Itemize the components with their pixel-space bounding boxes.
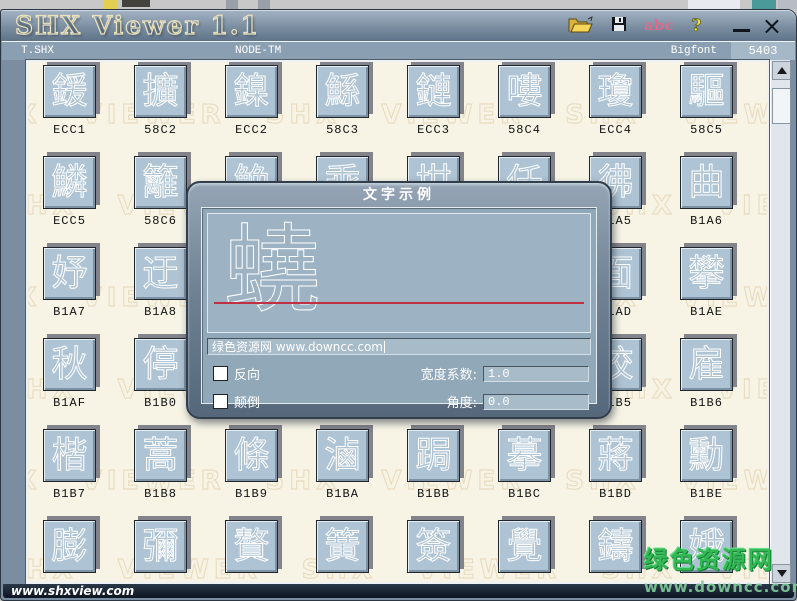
- baseline-rule: [214, 302, 584, 304]
- glyph-cell[interactable]: 鍰ECC1: [26, 64, 115, 155]
- sample-text-value: 绿色资源网 www.downcc.com: [212, 338, 383, 355]
- glyph-button[interactable]: 簧: [316, 520, 369, 573]
- glyph-char: 停: [142, 340, 178, 390]
- glyph-button[interactable]: 嘍: [498, 65, 551, 118]
- glyph-button[interactable]: 鍰: [43, 65, 96, 118]
- glyph-button[interactable]: 雇: [680, 338, 733, 391]
- glyph-button[interactable]: 鎳: [225, 65, 278, 118]
- glyph-code: 58C5: [690, 123, 723, 137]
- glyph-code: B1B8: [144, 487, 177, 501]
- glyph-cell[interactable]: 鱗ECC5: [26, 155, 115, 246]
- glyph-char: 摹: [506, 431, 542, 481]
- glyph-char: 雇: [688, 340, 724, 390]
- window-controls: ×: [733, 10, 782, 41]
- glyph-button[interactable]: 條: [225, 429, 278, 482]
- glyph-cell[interactable]: 嘍58C4: [479, 64, 570, 155]
- glyph-cell[interactable]: 妤B1A7: [26, 246, 115, 337]
- glyph-code: ECC5: [53, 214, 86, 228]
- glyph-button[interactable]: 擴: [134, 65, 187, 118]
- glyph-code: B1B6: [690, 396, 723, 410]
- glyph-cell[interactable]: 彌: [115, 519, 206, 584]
- glyph-cell[interactable]: 曲B1A6: [661, 155, 752, 246]
- glyph-char: 蔣: [597, 431, 633, 481]
- font-type-label: Bigfont: [671, 45, 717, 57]
- glyph-cell[interactable]: 蔣B1BD: [570, 428, 661, 519]
- glyph-cell[interactable]: 簧: [297, 519, 388, 584]
- desktop-fragment: [688, 0, 740, 9]
- glyph-char: 籬: [142, 158, 178, 208]
- glyph-cell[interactable]: 瓊ECC4: [570, 64, 661, 155]
- glyph-code: B1A6: [690, 214, 723, 228]
- desktop-fragment: [752, 0, 776, 9]
- loaded-file-label: T.SHX: [21, 45, 54, 57]
- help-button[interactable]: ?: [691, 16, 701, 36]
- glyph-code: B1B7: [53, 487, 86, 501]
- glyph-cell[interactable]: 鎳ECC2: [206, 64, 297, 155]
- glyph-cell[interactable]: 摹B1BC: [479, 428, 570, 519]
- close-button[interactable]: ×: [762, 12, 782, 40]
- glyph-button[interactable]: 迂: [134, 247, 187, 300]
- vertical-scrollbar[interactable]: [770, 60, 790, 584]
- glyph-button[interactable]: 妤: [43, 247, 96, 300]
- glyph-char: 贅: [233, 522, 269, 572]
- dialog-body: 蟯 绿色资源网 www.downcc.com 反向 宽度系数: 1.0 颠倒 角…: [201, 207, 597, 404]
- reverse-label: 反向: [234, 364, 260, 383]
- glyph-button[interactable]: 勳: [680, 429, 733, 482]
- preview-character: 蟯: [224, 216, 320, 324]
- angle-input[interactable]: 0.0: [483, 394, 589, 410]
- dialog-title[interactable]: 文字示例: [188, 183, 610, 205]
- glyph-button[interactable]: 贅: [225, 520, 278, 573]
- glyph-button[interactable]: 覺: [498, 520, 551, 573]
- angle-label: 角度:: [447, 392, 477, 411]
- glyph-button[interactable]: 停: [134, 338, 187, 391]
- site-watermark-url: www.downcc.com: [644, 578, 797, 596]
- glyph-char: 簧: [324, 522, 360, 572]
- screen: SHX Viewer 1.1: [0, 0, 797, 601]
- sample-text-input[interactable]: 绿色资源网 www.downcc.com: [207, 338, 591, 355]
- glyph-button[interactable]: 彌: [134, 520, 187, 573]
- font-name-label: NODE-TM: [235, 45, 281, 57]
- glyph-code: B1BA: [326, 487, 359, 501]
- glyph-code: B1B0: [144, 396, 177, 410]
- glyph-code: ECC4: [599, 123, 632, 137]
- glyph-code: B1B9: [235, 487, 268, 501]
- glyph-char: 嘍: [506, 67, 542, 117]
- glyph-cell[interactable]: 滷B1BA: [297, 428, 388, 519]
- glyph-button[interactable]: 滷: [316, 429, 369, 482]
- up-arrow-icon: [777, 67, 787, 74]
- glyph-preview-area: 蟯: [207, 213, 591, 333]
- glyph-cell[interactable]: 鯀58C3: [297, 64, 388, 155]
- glyph-char: 鎳: [233, 67, 269, 117]
- app-title: SHX Viewer 1.1: [15, 11, 260, 40]
- glyph-char: 鑄: [597, 522, 633, 572]
- open-file-icon[interactable]: [567, 15, 594, 38]
- glyph-button[interactable]: 鱗: [43, 156, 96, 209]
- glyph-cell[interactable]: 條B1B9: [206, 428, 297, 519]
- glyph-cell[interactable]: 膨: [26, 519, 115, 584]
- glyph-char: 曲: [688, 158, 724, 208]
- glyph-button[interactable]: 鯀: [316, 65, 369, 118]
- glyph-cell[interactable]: 簽: [388, 519, 479, 584]
- glyph-char: 鍰: [51, 67, 87, 117]
- glyph-char: 瓊: [597, 67, 633, 117]
- glyph-cell[interactable]: 驅58C5: [661, 64, 752, 155]
- glyph-cell[interactable]: 攀B1AE: [661, 246, 752, 337]
- glyph-code: B1AE: [690, 305, 723, 319]
- glyph-code: B1A8: [144, 305, 177, 319]
- glyph-char: 覺: [506, 522, 542, 572]
- toolbar: abc ?: [567, 15, 701, 37]
- glyph-char: 鯀: [324, 67, 360, 117]
- glyph-char: 條: [233, 431, 269, 481]
- scrollbar-thumb[interactable]: [772, 88, 791, 124]
- glyph-button[interactable]: 秋: [43, 338, 96, 391]
- font-info-bar: T.SHX NODE-TM Bigfont 5403: [2, 41, 795, 60]
- glyph-char: 膨: [51, 522, 87, 572]
- glyph-code: 58C3: [326, 123, 359, 137]
- glyph-cell[interactable]: 雇B1B6: [661, 337, 752, 428]
- glyph-code: B1BE: [690, 487, 723, 501]
- scroll-up-button[interactable]: [772, 61, 791, 80]
- glyph-button[interactable]: 攀: [680, 247, 733, 300]
- glyph-char: 楷: [51, 431, 87, 481]
- glyph-code: B1A7: [53, 305, 86, 319]
- desktop-fragment: [104, 0, 118, 9]
- glyph-char: 攀: [688, 249, 724, 299]
- glyph-code: 58C4: [508, 123, 541, 137]
- flip-checkbox[interactable]: [213, 394, 228, 409]
- glyph-cell[interactable]: 秋B1AF: [26, 337, 115, 428]
- glyph-button[interactable]: 膨: [43, 520, 96, 573]
- glyph-button[interactable]: 鏈: [407, 65, 460, 118]
- glyph-button[interactable]: 蒿: [134, 429, 187, 482]
- glyph-code: B1AF: [53, 396, 86, 410]
- glyph-cell[interactable]: 贅: [206, 519, 297, 584]
- glyph-button[interactable]: 鑄: [589, 520, 642, 573]
- site-watermark-name: 绿色资源网: [644, 540, 797, 575]
- glyph-cell[interactable]: 跼B1BB: [388, 428, 479, 519]
- text-sample-button[interactable]: abc: [644, 18, 674, 34]
- glyph-button[interactable]: 跼: [407, 429, 460, 482]
- text-cursor: [384, 341, 385, 353]
- desktop-fragment: [226, 0, 238, 9]
- glyph-cell[interactable]: 勳B1BE: [661, 428, 752, 519]
- glyph-char: 彌: [142, 522, 178, 572]
- glyph-char: 鱗: [51, 158, 87, 208]
- glyph-code: ECC3: [417, 123, 450, 137]
- glyph-code: B1BB: [417, 487, 450, 501]
- flip-label: 颠倒: [234, 392, 260, 411]
- glyph-char: 鏈: [415, 67, 451, 117]
- glyph-char: 迂: [142, 249, 178, 299]
- glyph-cell[interactable]: 覺: [479, 519, 570, 584]
- glyph-char: 驅: [688, 67, 724, 117]
- glyph-cell[interactable]: 楷B1B7: [26, 428, 115, 519]
- width-factor-label: 宽度系数:: [421, 364, 477, 383]
- width-factor-input[interactable]: 1.0: [483, 366, 589, 382]
- glyph-button[interactable]: 瓊: [589, 65, 642, 118]
- glyph-char: 妤: [51, 249, 87, 299]
- glyph-char: 簽: [415, 522, 451, 572]
- title-bar[interactable]: SHX Viewer 1.1: [1, 10, 796, 41]
- desktop-fragment: [258, 0, 270, 9]
- glyph-code: 58C2: [144, 123, 177, 137]
- save-icon[interactable]: [611, 16, 627, 36]
- glyph-button[interactable]: 簽: [407, 520, 460, 573]
- glyph-count-badge: 5403: [731, 42, 795, 60]
- text-sample-dialog[interactable]: 文字示例 蟯 绿色资源网 www.downcc.com 反向 宽度系数: 1.0…: [186, 181, 612, 419]
- glyph-button[interactable]: 蔣: [589, 429, 642, 482]
- option-row-2: 颠倒 角度: 0.0: [207, 392, 591, 411]
- glyph-char: 滷: [324, 431, 360, 481]
- glyph-button[interactable]: 摹: [498, 429, 551, 482]
- glyph-char: 蒿: [142, 431, 178, 481]
- glyph-code: 58C6: [144, 214, 177, 228]
- glyph-cell[interactable]: 蒿B1B8: [115, 428, 206, 519]
- glyph-char: 秋: [51, 340, 87, 390]
- desktop-fragment: [122, 0, 150, 7]
- glyph-button[interactable]: 驅: [680, 65, 733, 118]
- glyph-code: B1BD: [599, 487, 632, 501]
- glyph-cell[interactable]: 擴58C2: [115, 64, 206, 155]
- glyph-button[interactable]: 籬: [134, 156, 187, 209]
- glyph-code: ECC2: [235, 123, 268, 137]
- reverse-checkbox[interactable]: [213, 366, 228, 381]
- website-label: www.shxview.com: [11, 584, 134, 598]
- option-row-1: 反向 宽度系数: 1.0: [207, 364, 591, 383]
- glyph-code: B1BC: [508, 487, 541, 501]
- desktop-background-sliver: [0, 0, 797, 9]
- site-watermark: 绿色资源网 www.downcc.com: [644, 540, 797, 596]
- glyph-char: 跼: [415, 431, 451, 481]
- glyph-char: 勳: [688, 431, 724, 481]
- glyph-char: 擴: [142, 67, 178, 117]
- desktop-fragment: [778, 0, 797, 9]
- glyph-code: ECC1: [53, 123, 86, 137]
- glyph-button[interactable]: 楷: [43, 429, 96, 482]
- minimize-button[interactable]: [733, 29, 750, 32]
- glyph-cell[interactable]: 鏈ECC3: [388, 64, 479, 155]
- glyph-button[interactable]: 曲: [680, 156, 733, 209]
